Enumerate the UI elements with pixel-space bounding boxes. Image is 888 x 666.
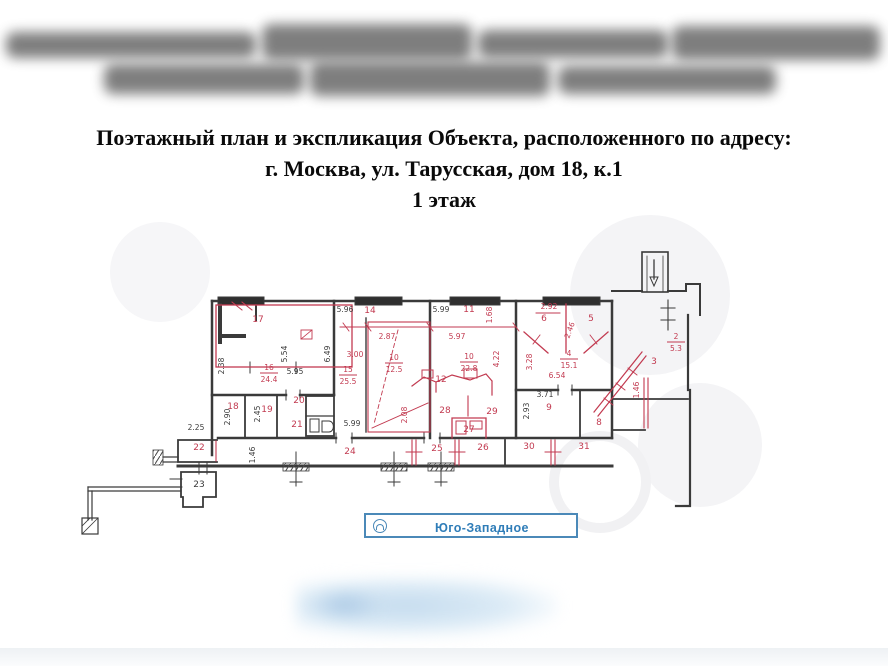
plan-dim-label: 5.99 xyxy=(344,419,361,428)
stamp-seal-icon xyxy=(373,519,387,533)
plan-room-label: 30 xyxy=(523,442,535,452)
plan-room-label: 19 xyxy=(261,405,273,415)
plan-dim-label: 2.38 xyxy=(217,357,226,374)
plan-room-label: 31 xyxy=(578,442,589,452)
plan-dim-label: 3.71 xyxy=(537,390,554,399)
plan-dim-label: 2.25 xyxy=(188,423,205,432)
plan-room-label: 6.54 xyxy=(549,371,566,380)
plan-room-area: 15.1 xyxy=(561,361,578,370)
plan-room-label: 24 xyxy=(344,447,356,457)
plan-room-area: 5.3 xyxy=(670,344,682,353)
plan-dim-label: 5.54 xyxy=(280,345,289,362)
document-page: { "header": { "line1": "Поэтажный план и… xyxy=(0,0,888,666)
floor-plan: 5.965.995.546.492.385.952.902.455.992.25… xyxy=(0,0,888,666)
plan-room-number: 10 xyxy=(389,353,399,362)
plan-room-label: 3.28 xyxy=(525,353,534,370)
plan-room-label: 2.92 xyxy=(541,302,558,311)
plan-room-label: 6 xyxy=(541,314,547,324)
plan-room-number: 15 xyxy=(343,365,353,374)
plan-room-label: 28 xyxy=(439,406,451,416)
page-bottom-band xyxy=(0,648,888,666)
plan-dim-label: 5.96 xyxy=(337,305,354,314)
plan-room-label: 29 xyxy=(486,407,498,417)
plan-room-label: 20 xyxy=(293,396,305,406)
plan-room-label: 2.08 xyxy=(400,406,409,423)
stamp-label: Юго-Западное xyxy=(435,521,529,535)
plan-room-number: 4 xyxy=(567,349,572,358)
watermark xyxy=(110,215,762,528)
plan-dim-label: 6.49 xyxy=(323,345,332,362)
plan-dim-label: 2.93 xyxy=(522,402,531,419)
plan-room-label: 8 xyxy=(596,418,602,428)
registry-stamp: Юго-Западное xyxy=(364,513,578,538)
plan-room-area: 22.8 xyxy=(461,364,478,373)
blurred-stamp-dark xyxy=(306,588,384,622)
plan-room-number: 16 xyxy=(264,363,274,372)
plan-room-number: 10 xyxy=(464,352,474,361)
plan-room-label: 5 xyxy=(588,314,594,324)
plan-room-label: 5.97 xyxy=(449,332,466,341)
plan-room-label: 3.00 xyxy=(347,350,364,359)
plan-dim-label: 23 xyxy=(193,480,204,490)
plan-room-label: 9 xyxy=(546,403,552,413)
plan-room-number: 2 xyxy=(674,332,679,341)
plan-room-label: 27 xyxy=(463,425,474,435)
plan-room-label: 26 xyxy=(477,443,489,453)
plan-dim-label: 5.99 xyxy=(433,305,450,314)
plan-room-label: 1.68 xyxy=(485,306,494,323)
plan-room-label: 1.46 xyxy=(632,381,641,398)
plan-room-label: 12 xyxy=(435,375,446,385)
plan-room-label: 21 xyxy=(291,420,302,430)
plan-room-area: 25.5 xyxy=(340,377,357,386)
plan-room-label: 2.46 xyxy=(563,321,577,340)
plan-room-label: 22 xyxy=(193,443,204,453)
plan-room-area: 12.5 xyxy=(386,365,403,374)
plan-room-label: 18 xyxy=(227,402,239,412)
plan-room-label: 11 xyxy=(463,305,474,315)
plan-room-label: 14 xyxy=(364,306,376,316)
plan-dim-label: 5.95 xyxy=(287,367,304,376)
plan-room-label: 2.87 xyxy=(379,332,396,341)
plan-room-label: 17 xyxy=(252,315,263,325)
plan-room-label: 4.22 xyxy=(492,350,501,367)
plan-room-label: 25 xyxy=(431,444,442,454)
plan-dimension-labels: 5.965.995.546.492.385.952.902.455.992.25… xyxy=(188,305,554,490)
plan-room-area: 24.4 xyxy=(261,375,278,384)
plan-dim-label: 1.46 xyxy=(248,446,257,463)
plan-room-label: 3 xyxy=(651,357,657,367)
